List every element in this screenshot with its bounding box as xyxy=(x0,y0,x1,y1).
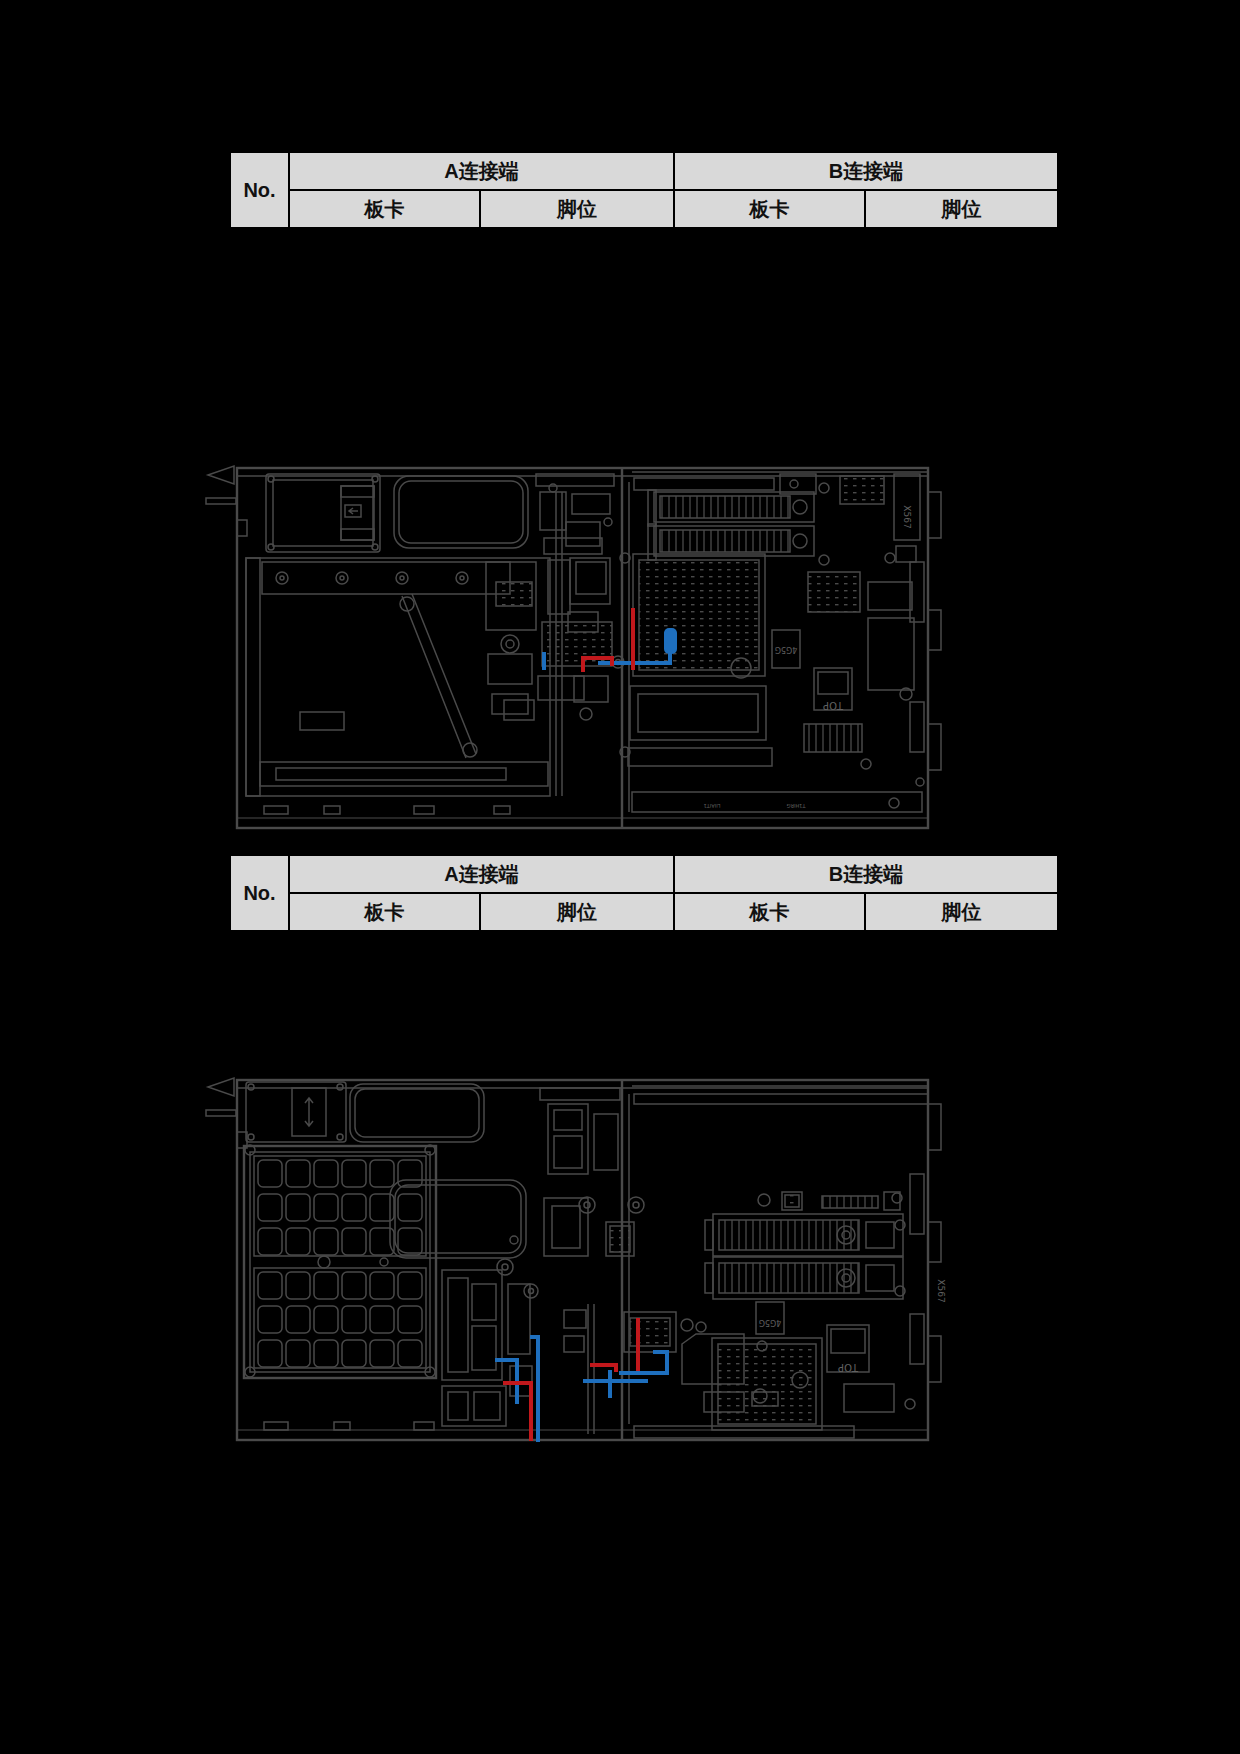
col-header-no: No. xyxy=(230,855,289,931)
group-header-b: B连接端 xyxy=(674,855,1058,893)
cable-blue-right-elbow xyxy=(619,1352,667,1373)
connection-table-2: No. A连接端 B连接端 板卡 脚位 板卡 脚位 xyxy=(229,854,1059,932)
riser-assembly: X567 xyxy=(628,1086,946,1303)
group-header-a: A连接端 xyxy=(289,855,674,893)
col-header-a-board: 板卡 xyxy=(289,893,480,931)
group-header-b: B连接端 xyxy=(674,152,1058,190)
col-header-no: No. xyxy=(230,152,289,228)
midplane-connectors xyxy=(536,474,624,700)
vent-slot xyxy=(394,476,528,548)
group-header-a: A连接端 xyxy=(289,152,674,190)
label-x567: X567 xyxy=(936,1279,946,1302)
label-x567: X567 xyxy=(902,505,912,528)
vent-slot xyxy=(350,1084,484,1142)
connection-table-1: No. A连接端 B连接端 板卡 脚位 板卡 脚位 xyxy=(229,151,1059,229)
col-header-a-pin: 脚位 xyxy=(480,893,674,931)
label-top: TOP xyxy=(838,1362,859,1373)
server-cabling-diagram-2: X567 4G5G TOP xyxy=(204,1074,984,1446)
center-board-upper xyxy=(497,1088,634,1298)
label-top: TOP xyxy=(823,700,844,711)
updown-arrow-icon xyxy=(305,1098,313,1126)
label-4g5g: 4G5G xyxy=(775,645,798,654)
cpu-area xyxy=(628,554,772,766)
center-vent-slot xyxy=(390,1180,526,1258)
col-header-a-pin: 脚位 xyxy=(480,190,674,228)
label-rail-right: T1HIRG xyxy=(786,803,806,809)
chassis-outline xyxy=(206,1078,941,1440)
eject-arrow-icon xyxy=(349,508,358,514)
cpu-area xyxy=(712,1338,822,1430)
col-header-b-pin: 脚位 xyxy=(865,893,1058,931)
psu-module xyxy=(266,474,380,552)
midplane-wall xyxy=(620,468,630,828)
col-header-b-board: 板卡 xyxy=(674,190,865,228)
psu-module xyxy=(246,1082,346,1142)
diagonal-brace xyxy=(402,594,476,758)
midplane-wall xyxy=(622,1080,629,1440)
col-header-b-board: 板卡 xyxy=(674,893,865,931)
col-header-a-board: 板卡 xyxy=(289,190,480,228)
label-4g5g: 4G5G xyxy=(759,1318,782,1327)
riser-assembly: X567 xyxy=(632,472,928,565)
label-rail-left: LIIAIT1 xyxy=(704,803,721,809)
document-page: No. A连接端 B连接端 板卡 脚位 板卡 脚位 xyxy=(0,0,1240,1754)
server-cabling-diagram-1: X567 4G5G TOP xyxy=(204,462,984,834)
col-header-b-pin: 脚位 xyxy=(865,190,1058,228)
